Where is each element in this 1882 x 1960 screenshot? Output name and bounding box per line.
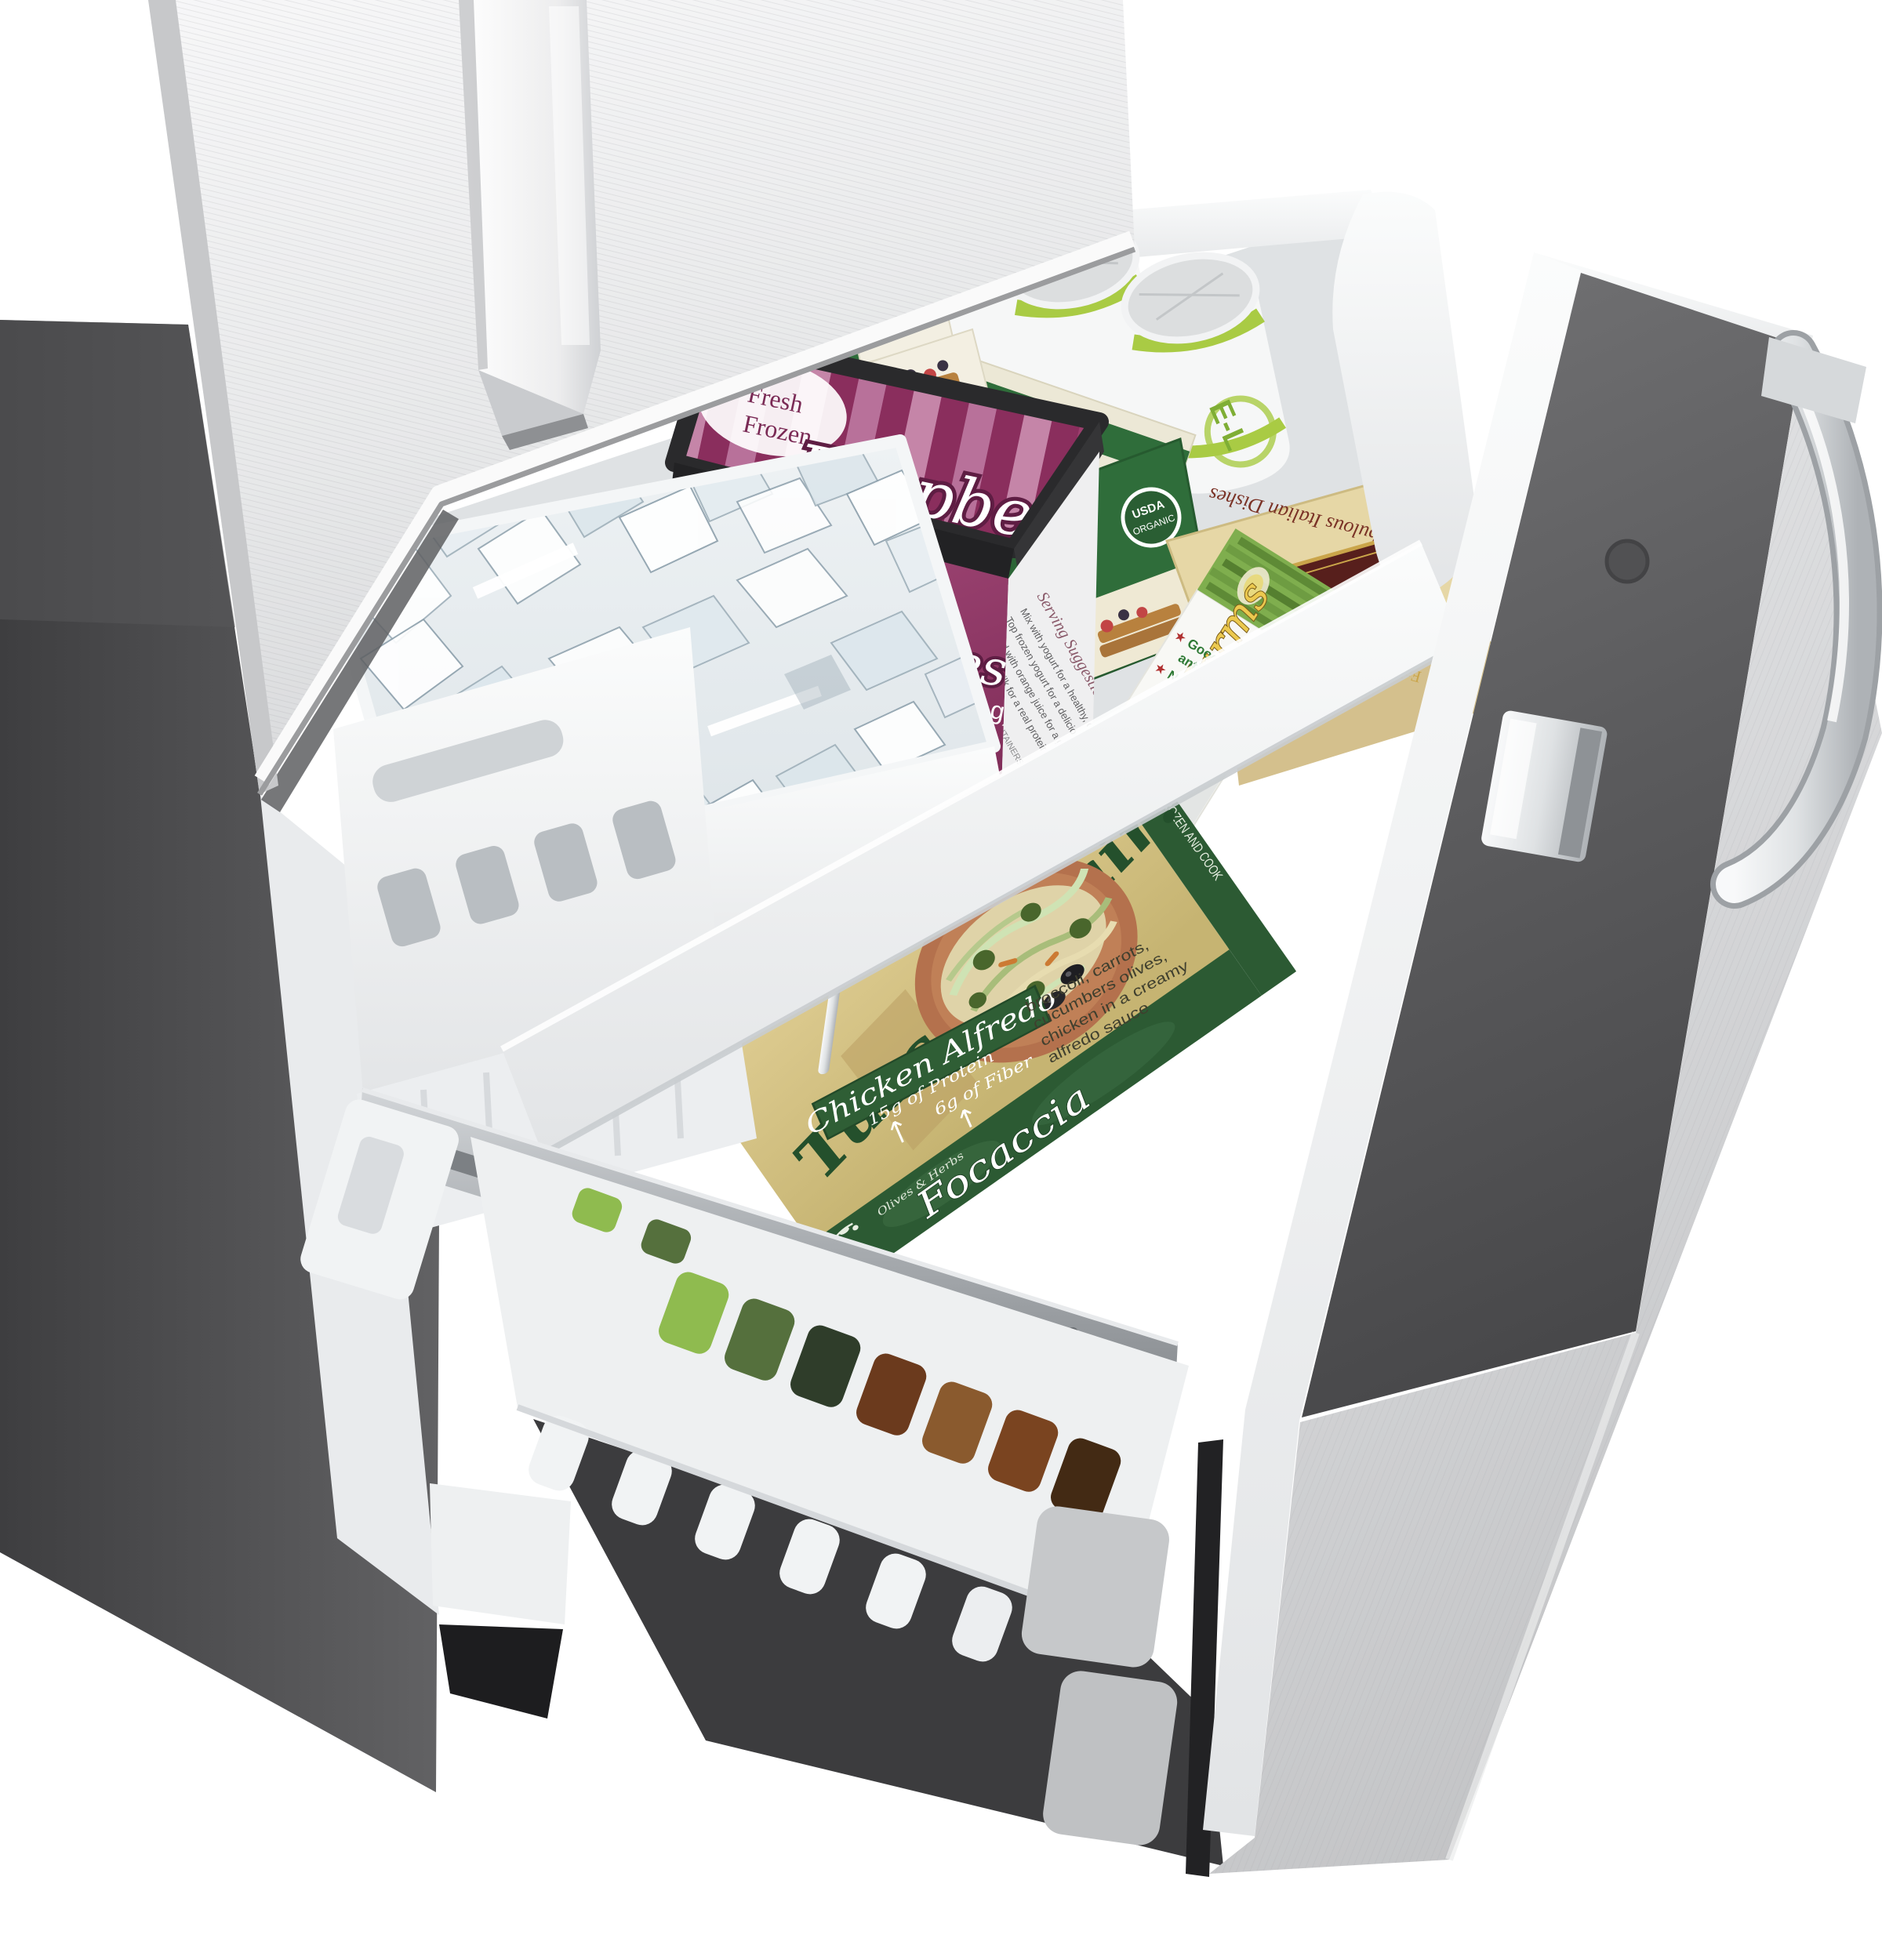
product-photo: E-L multi-grain waffles multi-grain waff… (0, 0, 1882, 1960)
liner-sill (430, 1483, 571, 1624)
liner-button (1607, 541, 1648, 582)
